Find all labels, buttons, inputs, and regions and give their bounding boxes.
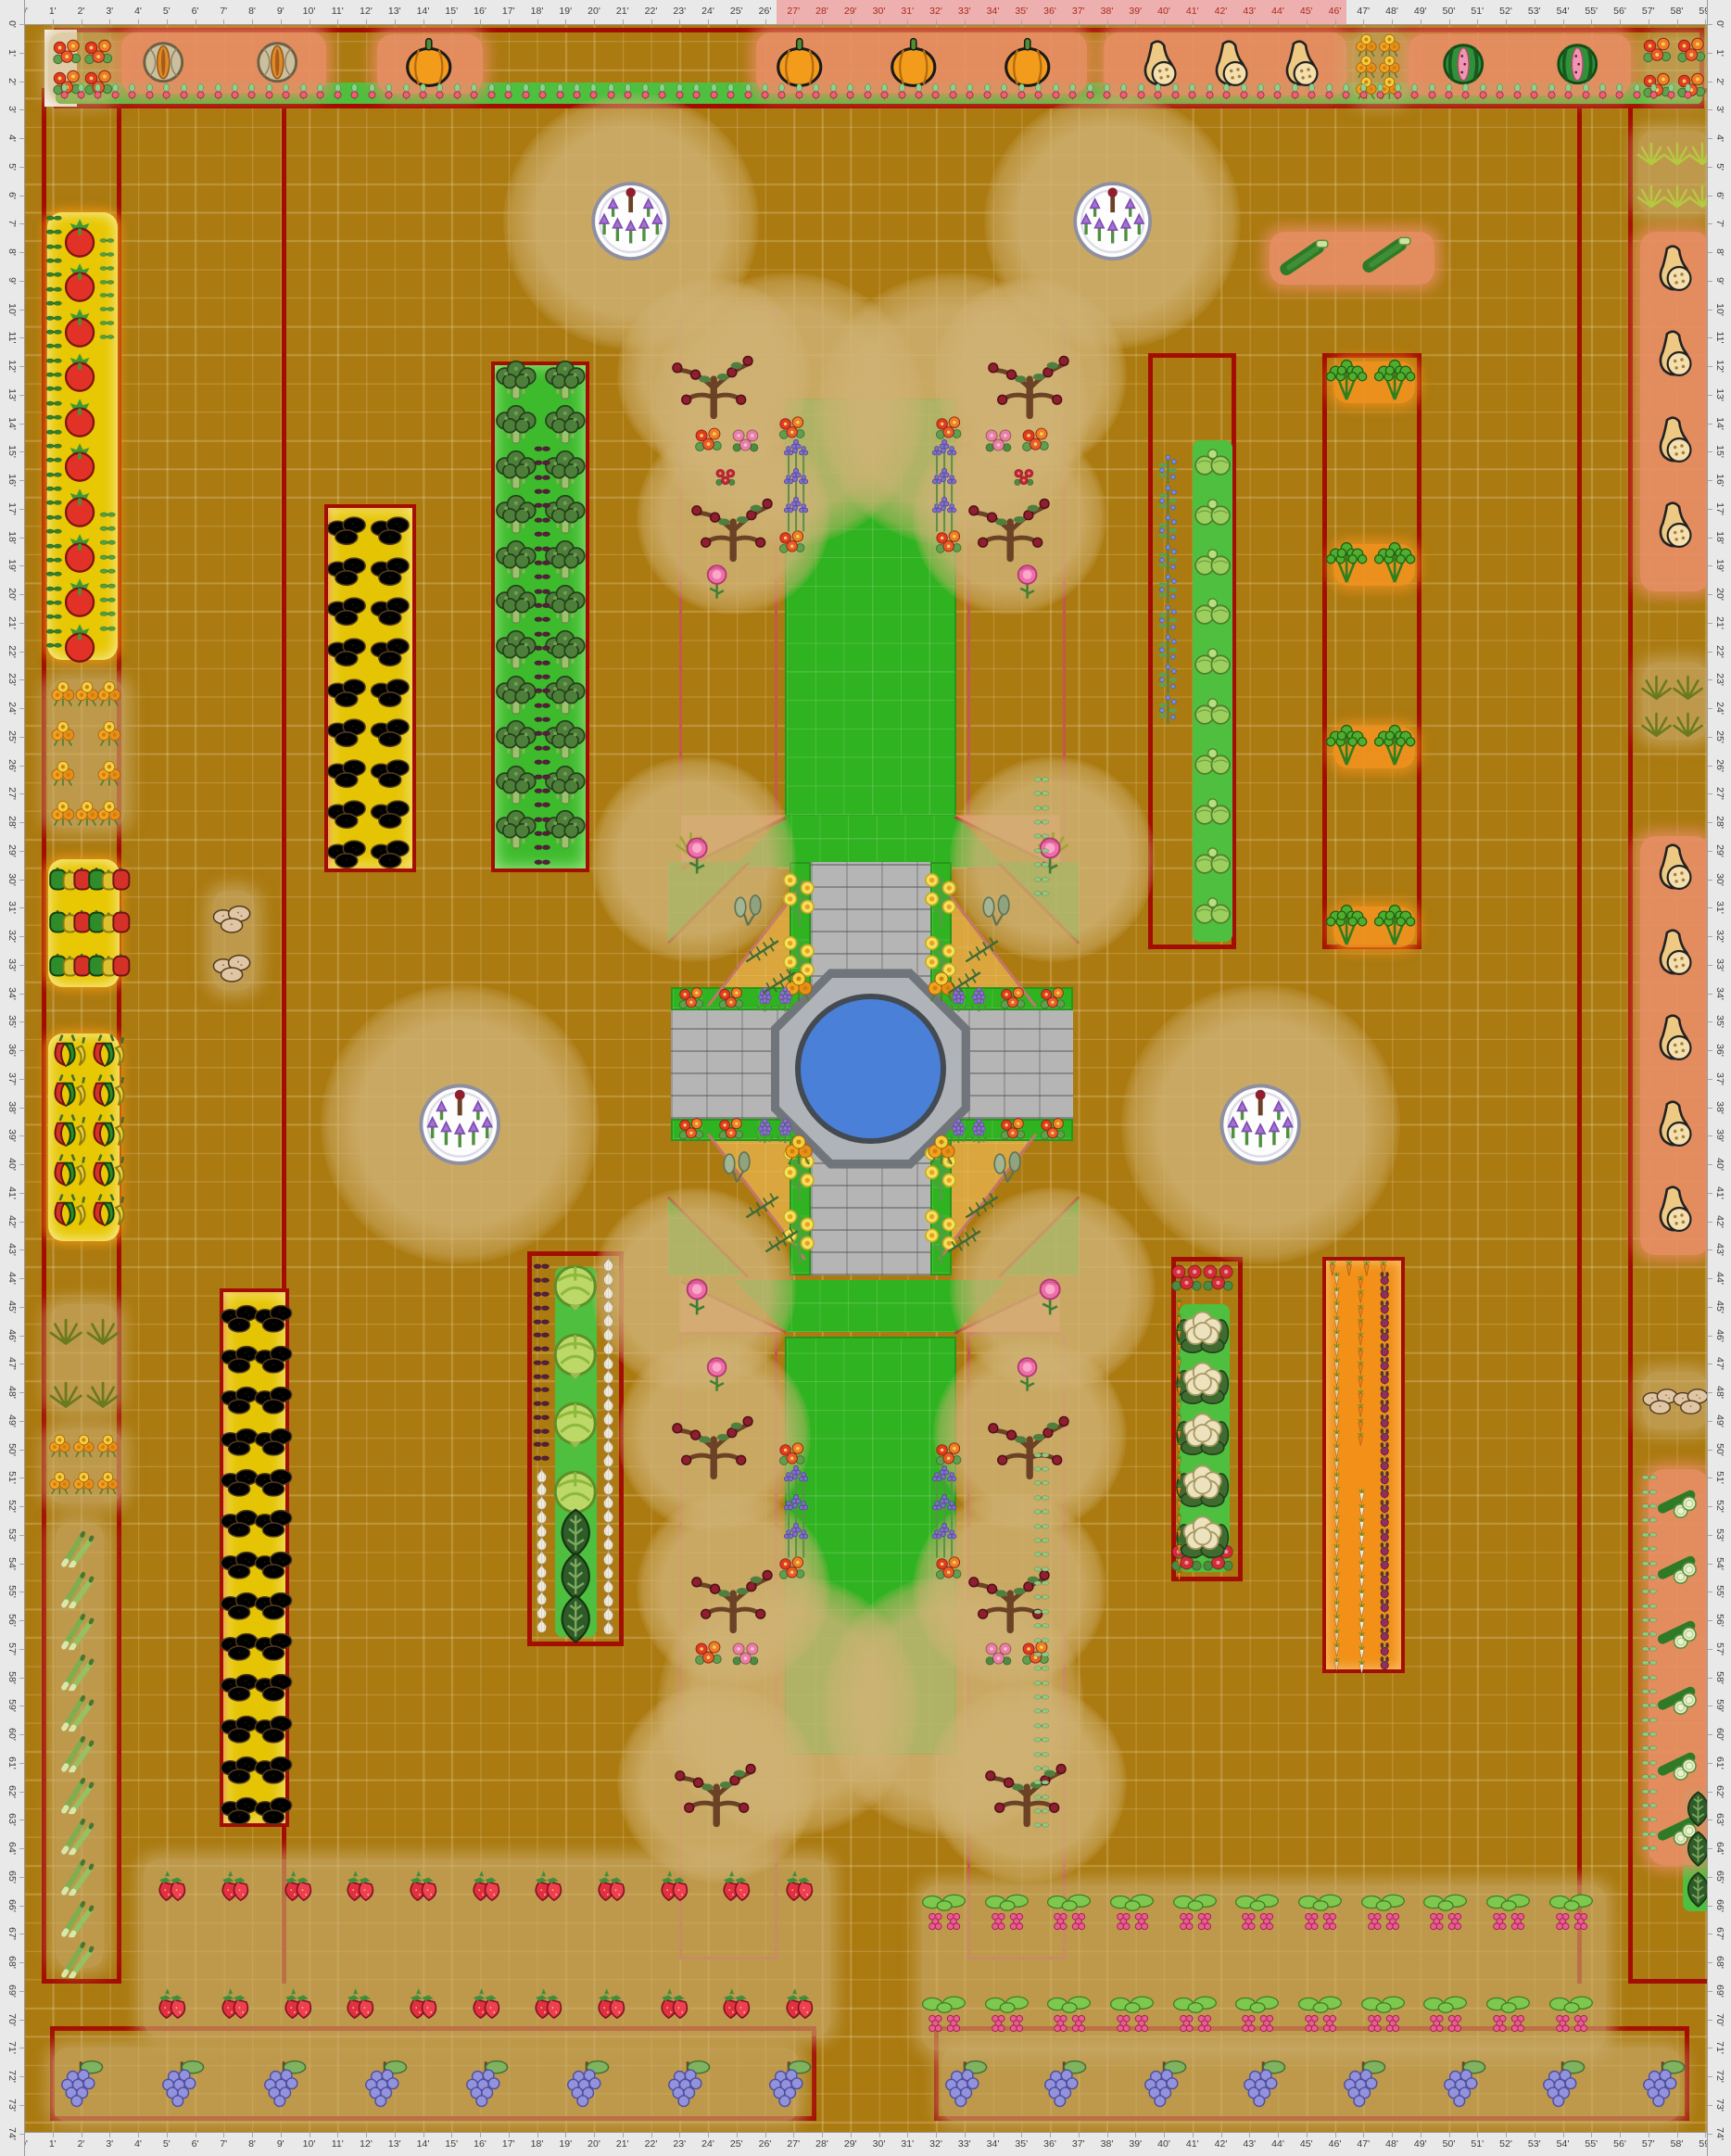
rose-icon[interactable]: [673, 832, 721, 881]
butternut-squash-icon[interactable]: [1647, 1097, 1700, 1151]
potato-icon[interactable]: [252, 1335, 295, 1377]
asparagus-icon[interactable]: [57, 1689, 99, 1731]
radish-row-icon[interactable]: [790, 82, 808, 100]
cucumber-vine-icon[interactable]: [99, 620, 116, 637]
grape-vine-icon[interactable]: [155, 2055, 208, 2109]
radish-row-icon[interactable]: [671, 82, 689, 100]
radish-row-icon[interactable]: [739, 82, 757, 100]
radish-row-icon[interactable]: [1081, 82, 1099, 100]
brussels-sprouts-icon[interactable]: [1190, 640, 1235, 685]
potato-icon[interactable]: [252, 1417, 295, 1460]
marigold-icon[interactable]: [94, 758, 125, 790]
radish-row-icon[interactable]: [1525, 82, 1543, 100]
cabbage-icon[interactable]: [547, 1258, 604, 1315]
radish-row-icon[interactable]: [619, 82, 637, 100]
asparagus-icon[interactable]: [57, 1935, 99, 1978]
cherry-tree-icon[interactable]: [668, 1389, 759, 1480]
radish-row-icon[interactable]: [534, 82, 551, 100]
potato-icon[interactable]: [252, 1622, 295, 1665]
potato-icon[interactable]: [252, 1541, 295, 1583]
radish-row-icon[interactable]: [226, 82, 244, 100]
tomato-icon[interactable]: [58, 307, 101, 349]
potato-icon[interactable]: [252, 1376, 295, 1418]
parsley-icon[interactable]: [1371, 901, 1419, 949]
carrot-icon[interactable]: [1171, 1510, 1187, 1526]
rose-icon[interactable]: [1026, 1274, 1074, 1322]
rosemary-icon[interactable]: [756, 957, 802, 1002]
brussels-sprouts-icon[interactable]: [1190, 889, 1235, 934]
potato-icon[interactable]: [368, 667, 412, 712]
radish-row-icon[interactable]: [602, 82, 620, 100]
raspberry-icon[interactable]: [1296, 1890, 1345, 1938]
radish-row-icon[interactable]: [1509, 82, 1526, 100]
radish-row-icon[interactable]: [449, 82, 466, 100]
broccoli-icon[interactable]: [491, 628, 541, 679]
raspberry-icon[interactable]: [1045, 1890, 1093, 1938]
butternut-squash-icon[interactable]: [1647, 327, 1700, 381]
raspberry-icon[interactable]: [1045, 1992, 1093, 2040]
radish-row-icon[interactable]: [414, 82, 432, 100]
potato-icon[interactable]: [368, 586, 412, 630]
dianthus-icon[interactable]: [981, 424, 1016, 458]
radish-row-icon[interactable]: [1252, 82, 1270, 100]
cherry-tree-icon[interactable]: [965, 472, 1055, 563]
ginger-icon[interactable]: [1671, 1378, 1711, 1418]
radish-row-icon[interactable]: [209, 82, 227, 100]
rosemary-icon[interactable]: [759, 1215, 804, 1261]
beet-greens-icon[interactable]: [534, 854, 550, 870]
radish-row-icon[interactable]: [431, 82, 449, 100]
cherry-tree-icon[interactable]: [688, 1543, 778, 1634]
raspberry-icon[interactable]: [1171, 1890, 1219, 1938]
nasturtium-icon[interactable]: [81, 35, 116, 70]
radish-row-icon[interactable]: [1371, 82, 1389, 100]
marigold-icon[interactable]: [94, 718, 125, 750]
parsley-icon[interactable]: [1322, 356, 1371, 404]
grape-vine-icon[interactable]: [1436, 2055, 1490, 2109]
radish-row-icon[interactable]: [465, 82, 483, 100]
broccoli-icon[interactable]: [491, 359, 541, 409]
radish-row-icon[interactable]: [1047, 82, 1065, 100]
nasturtium-icon[interactable]: [49, 35, 84, 70]
radish-row-icon[interactable]: [1201, 82, 1219, 100]
brussels-sprouts-icon[interactable]: [1190, 540, 1235, 586]
butternut-squash-icon[interactable]: [1647, 841, 1700, 894]
radish-row-icon[interactable]: [841, 82, 859, 100]
broccoli-icon[interactable]: [491, 764, 541, 814]
asparagus-icon[interactable]: [57, 1853, 99, 1896]
tulip-planter-icon[interactable]: [414, 1079, 505, 1170]
asparagus-icon[interactable]: [57, 1566, 99, 1608]
potato-icon[interactable]: [368, 789, 412, 833]
radish-row-icon[interactable]: [1423, 82, 1441, 100]
tomato-icon[interactable]: [58, 487, 101, 529]
grape-vine-icon[interactable]: [560, 2055, 613, 2109]
lavender-icon[interactable]: [775, 493, 817, 536]
brussels-sprouts-icon[interactable]: [1190, 839, 1235, 884]
asparagus-icon[interactable]: [57, 1648, 99, 1691]
potato-icon[interactable]: [324, 789, 369, 833]
radish-row-icon[interactable]: [1235, 82, 1253, 100]
cucumber-icon[interactable]: [1654, 1742, 1702, 1790]
cherry-tree-icon[interactable]: [984, 1389, 1075, 1480]
radish-row-icon[interactable]: [1406, 82, 1423, 100]
radish-row-icon[interactable]: [260, 82, 278, 100]
radish-row-icon[interactable]: [1115, 82, 1132, 100]
carrot-icon[interactable]: [1171, 1325, 1187, 1340]
broccoli-icon[interactable]: [491, 493, 541, 543]
hyacinth-icon[interactable]: [771, 1116, 800, 1145]
radish-row-icon[interactable]: [927, 82, 944, 100]
raspberry-icon[interactable]: [1359, 1890, 1408, 1938]
brussels-sprouts-icon[interactable]: [1190, 440, 1235, 486]
nasturtium-icon[interactable]: [1037, 983, 1068, 1015]
beet-icon[interactable]: [1376, 1655, 1393, 1671]
cherry-tree-icon[interactable]: [671, 1737, 762, 1828]
strawberry-icon[interactable]: [149, 1983, 195, 2028]
radish-row-icon[interactable]: [1440, 82, 1458, 100]
radish-row-icon[interactable]: [1474, 82, 1492, 100]
carrot-icon[interactable]: [1171, 1311, 1187, 1326]
raspberry-icon[interactable]: [920, 1890, 968, 1938]
radish-row-icon[interactable]: [1560, 82, 1577, 100]
rose-icon[interactable]: [694, 560, 739, 605]
radish-row-icon[interactable]: [1183, 82, 1201, 100]
strawberry-icon[interactable]: [212, 1983, 258, 2028]
broccoli-icon[interactable]: [491, 808, 541, 858]
radish-row-icon[interactable]: [141, 82, 158, 100]
parsley-icon[interactable]: [1371, 721, 1419, 769]
asparagus-icon[interactable]: [57, 1771, 99, 1814]
parsnip-icon[interactable]: [1328, 1655, 1346, 1672]
grape-vine-icon[interactable]: [257, 2055, 310, 2109]
borage-icon[interactable]: [1151, 691, 1185, 726]
radish-row-icon[interactable]: [568, 82, 586, 100]
butternut-squash-icon[interactable]: [1647, 1011, 1700, 1065]
marigold-icon[interactable]: [94, 798, 125, 830]
butternut-squash-icon[interactable]: [1647, 499, 1700, 552]
radish-row-icon[interactable]: [1098, 82, 1116, 100]
radish-row-icon[interactable]: [1594, 82, 1611, 100]
radish-row-icon[interactable]: [1218, 82, 1235, 100]
radish-row-icon[interactable]: [585, 82, 602, 100]
sweet-pepper-icon[interactable]: [84, 852, 133, 900]
strawberry-icon[interactable]: [651, 1865, 697, 1910]
radish-row-icon[interactable]: [653, 82, 671, 100]
radish-row-icon[interactable]: [1628, 82, 1646, 100]
radish-row-icon[interactable]: [175, 82, 193, 100]
potato-icon[interactable]: [252, 1663, 295, 1706]
field-line-right[interactable]: [1577, 88, 1582, 1984]
raspberry-icon[interactable]: [1233, 1890, 1282, 1938]
butternut-squash-icon[interactable]: [1647, 926, 1700, 980]
radish-row-icon[interactable]: [329, 82, 347, 100]
grape-vine-icon[interactable]: [1137, 2055, 1191, 2109]
cabbage-icon[interactable]: [547, 1326, 604, 1384]
radish-row-icon[interactable]: [995, 82, 1013, 100]
strawberry-icon[interactable]: [588, 1983, 634, 2028]
radish-row-icon[interactable]: [380, 82, 398, 100]
marigold-icon[interactable]: [47, 718, 79, 750]
nasturtium-icon[interactable]: [715, 983, 747, 1015]
grape-vine-icon[interactable]: [1236, 2055, 1290, 2109]
cucumber-icon[interactable]: [1654, 1610, 1702, 1658]
brussels-sprouts-icon[interactable]: [1190, 590, 1235, 635]
radish-row-icon[interactable]: [1286, 82, 1304, 100]
potato-icon[interactable]: [324, 586, 369, 630]
tomato-icon[interactable]: [58, 261, 101, 304]
carrot-icon[interactable]: [1171, 1396, 1187, 1412]
tomato-icon[interactable]: [58, 532, 101, 575]
carrot-icon[interactable]: [1171, 1495, 1187, 1511]
radish-row-icon[interactable]: [893, 82, 911, 100]
raspberry-icon[interactable]: [1233, 1992, 1282, 2040]
garlic-icon[interactable]: [533, 1617, 550, 1634]
rosemary-icon[interactable]: [941, 957, 987, 1002]
brussels-sprouts-icon[interactable]: [1190, 490, 1235, 536]
cucumber-icon[interactable]: [1654, 1545, 1702, 1593]
grape-vine-icon[interactable]: [54, 2055, 107, 2109]
strawberry-icon[interactable]: [588, 1865, 634, 1910]
butternut-squash-icon[interactable]: [1647, 413, 1700, 467]
nasturtium-icon[interactable]: [1639, 33, 1674, 69]
brussels-sprouts-icon[interactable]: [1190, 740, 1235, 785]
pea-vine-icon[interactable]: [1033, 1817, 1050, 1833]
potato-icon[interactable]: [252, 1581, 295, 1624]
tomato-icon[interactable]: [58, 351, 101, 394]
marigold-icon[interactable]: [94, 1469, 122, 1498]
cucumber-vine-icon[interactable]: [99, 329, 115, 345]
potato-icon[interactable]: [252, 1705, 295, 1747]
lavender-icon[interactable]: [923, 493, 966, 536]
radish-row-icon[interactable]: [158, 82, 175, 100]
dianthus-icon[interactable]: [981, 1637, 1016, 1671]
broccoli-icon[interactable]: [491, 403, 541, 453]
radish-row-icon[interactable]: [637, 82, 654, 100]
carrot-icon[interactable]: [1171, 1481, 1187, 1497]
hyacinth-icon[interactable]: [965, 1116, 993, 1145]
grape-vine-icon[interactable]: [459, 2055, 512, 2109]
strawberry-icon[interactable]: [400, 1865, 446, 1910]
raspberry-icon[interactable]: [983, 1890, 1031, 1938]
tulip-planter-icon[interactable]: [1215, 1079, 1306, 1170]
strawberry-icon[interactable]: [777, 1865, 822, 1910]
garden-canvas[interactable]: [0, 0, 1731, 2156]
sweet-william-icon[interactable]: [713, 464, 739, 490]
nasturtium-icon[interactable]: [691, 424, 726, 458]
potato-icon[interactable]: [324, 707, 369, 752]
parsley-icon[interactable]: [1322, 901, 1371, 949]
cherry-tree-icon[interactable]: [981, 1737, 1072, 1828]
radish-row-icon[interactable]: [876, 82, 893, 100]
parsley-icon[interactable]: [1322, 539, 1371, 587]
cucumber-icon[interactable]: [1654, 1479, 1702, 1528]
broccoli-icon[interactable]: [491, 449, 541, 499]
grape-vine-icon[interactable]: [661, 2055, 714, 2109]
tulip-planter-icon[interactable]: [1068, 177, 1156, 265]
asparagus-icon[interactable]: [57, 1895, 99, 1937]
radish-row-icon[interactable]: [910, 82, 928, 100]
rose-icon[interactable]: [673, 1274, 721, 1322]
radish-row-icon[interactable]: [1167, 82, 1184, 100]
radish-row-icon[interactable]: [363, 82, 381, 100]
strawberry-icon[interactable]: [400, 1983, 446, 2028]
brussels-sprouts-icon[interactable]: [1190, 790, 1235, 835]
radish-row-icon[interactable]: [311, 82, 329, 100]
raspberry-icon[interactable]: [1296, 1992, 1345, 2040]
nasturtium-icon[interactable]: [1018, 424, 1053, 458]
strawberry-icon[interactable]: [525, 1865, 571, 1910]
nasturtium-icon[interactable]: [1037, 1114, 1068, 1146]
tomato-icon[interactable]: [58, 577, 101, 619]
raspberry-icon[interactable]: [1359, 1992, 1408, 2040]
carrot-icon[interactable]: [1171, 1553, 1187, 1568]
radish-row-icon[interactable]: [722, 82, 739, 100]
radish-row-icon[interactable]: [551, 82, 569, 100]
radish-row-icon[interactable]: [398, 82, 415, 100]
potato-icon[interactable]: [368, 829, 412, 873]
raspberry-icon[interactable]: [1485, 1890, 1533, 1938]
cherry-tree-icon[interactable]: [984, 329, 1075, 420]
zucchini-icon[interactable]: [1360, 226, 1418, 284]
asparagus-icon[interactable]: [57, 1607, 99, 1650]
raspberry-icon[interactable]: [1548, 1992, 1596, 2040]
strawberry-icon[interactable]: [463, 1983, 509, 2028]
rose-icon[interactable]: [1004, 560, 1050, 605]
potato-icon[interactable]: [324, 546, 369, 590]
nasturtium-icon[interactable]: [997, 1114, 1029, 1146]
grape-vine-icon[interactable]: [938, 2055, 992, 2109]
radish-row-icon[interactable]: [1543, 82, 1560, 100]
radish-row-icon[interactable]: [961, 82, 979, 100]
cucumber-icon[interactable]: [1654, 1676, 1702, 1724]
radish-row-icon[interactable]: [1491, 82, 1509, 100]
white-carrot-icon[interactable]: [1353, 1657, 1371, 1675]
broccoli-icon[interactable]: [491, 583, 541, 633]
potato-icon[interactable]: [324, 505, 369, 550]
strawberry-icon[interactable]: [337, 1983, 383, 2028]
potato-icon[interactable]: [368, 546, 412, 590]
strawberry-icon[interactable]: [149, 1865, 195, 1910]
strawberry-icon[interactable]: [212, 1865, 258, 1910]
tulip-planter-icon[interactable]: [587, 177, 675, 265]
radish-row-icon[interactable]: [1645, 82, 1662, 100]
radish-row-icon[interactable]: [756, 82, 774, 100]
carrot-icon[interactable]: [1171, 1539, 1187, 1554]
radish-row-icon[interactable]: [1132, 82, 1150, 100]
rose-icon[interactable]: [1004, 1352, 1050, 1398]
dianthus-icon[interactable]: [728, 1637, 763, 1671]
raspberry-icon[interactable]: [1421, 1992, 1470, 2040]
bed-parsley[interactable]: [1322, 353, 1422, 949]
radish-row-icon[interactable]: [295, 82, 312, 100]
lavender-icon[interactable]: [923, 1519, 966, 1562]
strawberry-icon[interactable]: [714, 1983, 759, 2028]
asparagus-icon[interactable]: [57, 1730, 99, 1772]
marigold-icon[interactable]: [94, 679, 125, 710]
grape-vine-icon[interactable]: [1636, 2055, 1689, 2109]
radish-row-icon[interactable]: [705, 82, 723, 100]
beet-greens-icon[interactable]: [533, 1450, 550, 1466]
grape-vine-icon[interactable]: [762, 2055, 815, 2109]
potato-icon[interactable]: [324, 667, 369, 712]
cherry-tree-icon[interactable]: [668, 329, 759, 420]
carrot-icon[interactable]: [1171, 1425, 1187, 1440]
radish-row-icon[interactable]: [1577, 82, 1595, 100]
sweet-william-icon[interactable]: [1011, 464, 1037, 490]
carrot-icon[interactable]: [1171, 1410, 1187, 1426]
nasturtium-icon[interactable]: [691, 1637, 726, 1671]
radish-row-icon[interactable]: [688, 82, 705, 100]
sweet-pepper-icon[interactable]: [84, 938, 133, 986]
radish-row-icon[interactable]: [807, 82, 825, 100]
broccoli-icon[interactable]: [491, 718, 541, 768]
radish-row-icon[interactable]: [1064, 82, 1081, 100]
ginger-icon[interactable]: [210, 894, 253, 937]
potato-icon[interactable]: [324, 627, 369, 671]
onion-grass-icon[interactable]: [1668, 663, 1708, 703]
nasturtium-icon[interactable]: [997, 983, 1029, 1015]
strawberry-icon[interactable]: [714, 1865, 759, 1910]
lavender-icon[interactable]: [775, 1519, 817, 1562]
parsley-icon[interactable]: [1371, 539, 1419, 587]
radish-row-icon[interactable]: [107, 82, 124, 100]
radish-row-icon[interactable]: [89, 82, 107, 100]
potato-icon[interactable]: [368, 707, 412, 752]
strawberry-icon[interactable]: [275, 1983, 321, 2028]
radish-row-icon[interactable]: [1320, 82, 1338, 100]
radish-row-icon[interactable]: [1355, 82, 1372, 100]
radish-row-icon[interactable]: [277, 82, 295, 100]
parsley-icon[interactable]: [1322, 721, 1371, 769]
asparagus-icon[interactable]: [57, 1812, 99, 1855]
asparagus-icon[interactable]: [57, 1525, 99, 1567]
carrot-icon[interactable]: [1171, 1296, 1187, 1312]
raspberry-icon[interactable]: [1421, 1890, 1470, 1938]
potato-icon[interactable]: [252, 1499, 295, 1541]
pea-vine-icon[interactable]: [1033, 885, 1050, 902]
radish-row-icon[interactable]: [944, 82, 962, 100]
rosemary-icon[interactable]: [941, 1215, 987, 1261]
strawberry-icon[interactable]: [275, 1865, 321, 1910]
marigold-icon[interactable]: [94, 1432, 122, 1461]
potato-icon[interactable]: [368, 627, 412, 671]
carrot-icon[interactable]: [1171, 1338, 1187, 1354]
nasturtium-icon[interactable]: [676, 1114, 707, 1146]
parsley-icon[interactable]: [1371, 356, 1419, 404]
kale-icon[interactable]: [549, 1591, 602, 1644]
radish-row-icon[interactable]: [1013, 82, 1030, 100]
brussels-sprouts-icon[interactable]: [1190, 690, 1235, 735]
radish-row-icon[interactable]: [123, 82, 141, 100]
carrot-icon[interactable]: [1171, 1353, 1187, 1369]
potato-icon[interactable]: [324, 829, 369, 873]
raspberry-icon[interactable]: [1108, 1890, 1156, 1938]
broccoli-icon[interactable]: [491, 539, 541, 589]
radish-row-icon[interactable]: [499, 82, 517, 100]
butternut-squash-icon[interactable]: [1647, 242, 1700, 296]
radish-row-icon[interactable]: [192, 82, 209, 100]
radish-row-icon[interactable]: [1457, 82, 1474, 100]
radish-row-icon[interactable]: [1679, 82, 1697, 100]
broccoli-icon[interactable]: [491, 674, 541, 724]
marigold-icon[interactable]: [47, 758, 79, 790]
carrot-icon[interactable]: [1171, 1381, 1187, 1397]
raspberry-icon[interactable]: [983, 1992, 1031, 2040]
sweet-pepper-icon[interactable]: [84, 894, 133, 943]
tomato-icon[interactable]: [58, 397, 101, 439]
raspberry-icon[interactable]: [1485, 1992, 1533, 2040]
